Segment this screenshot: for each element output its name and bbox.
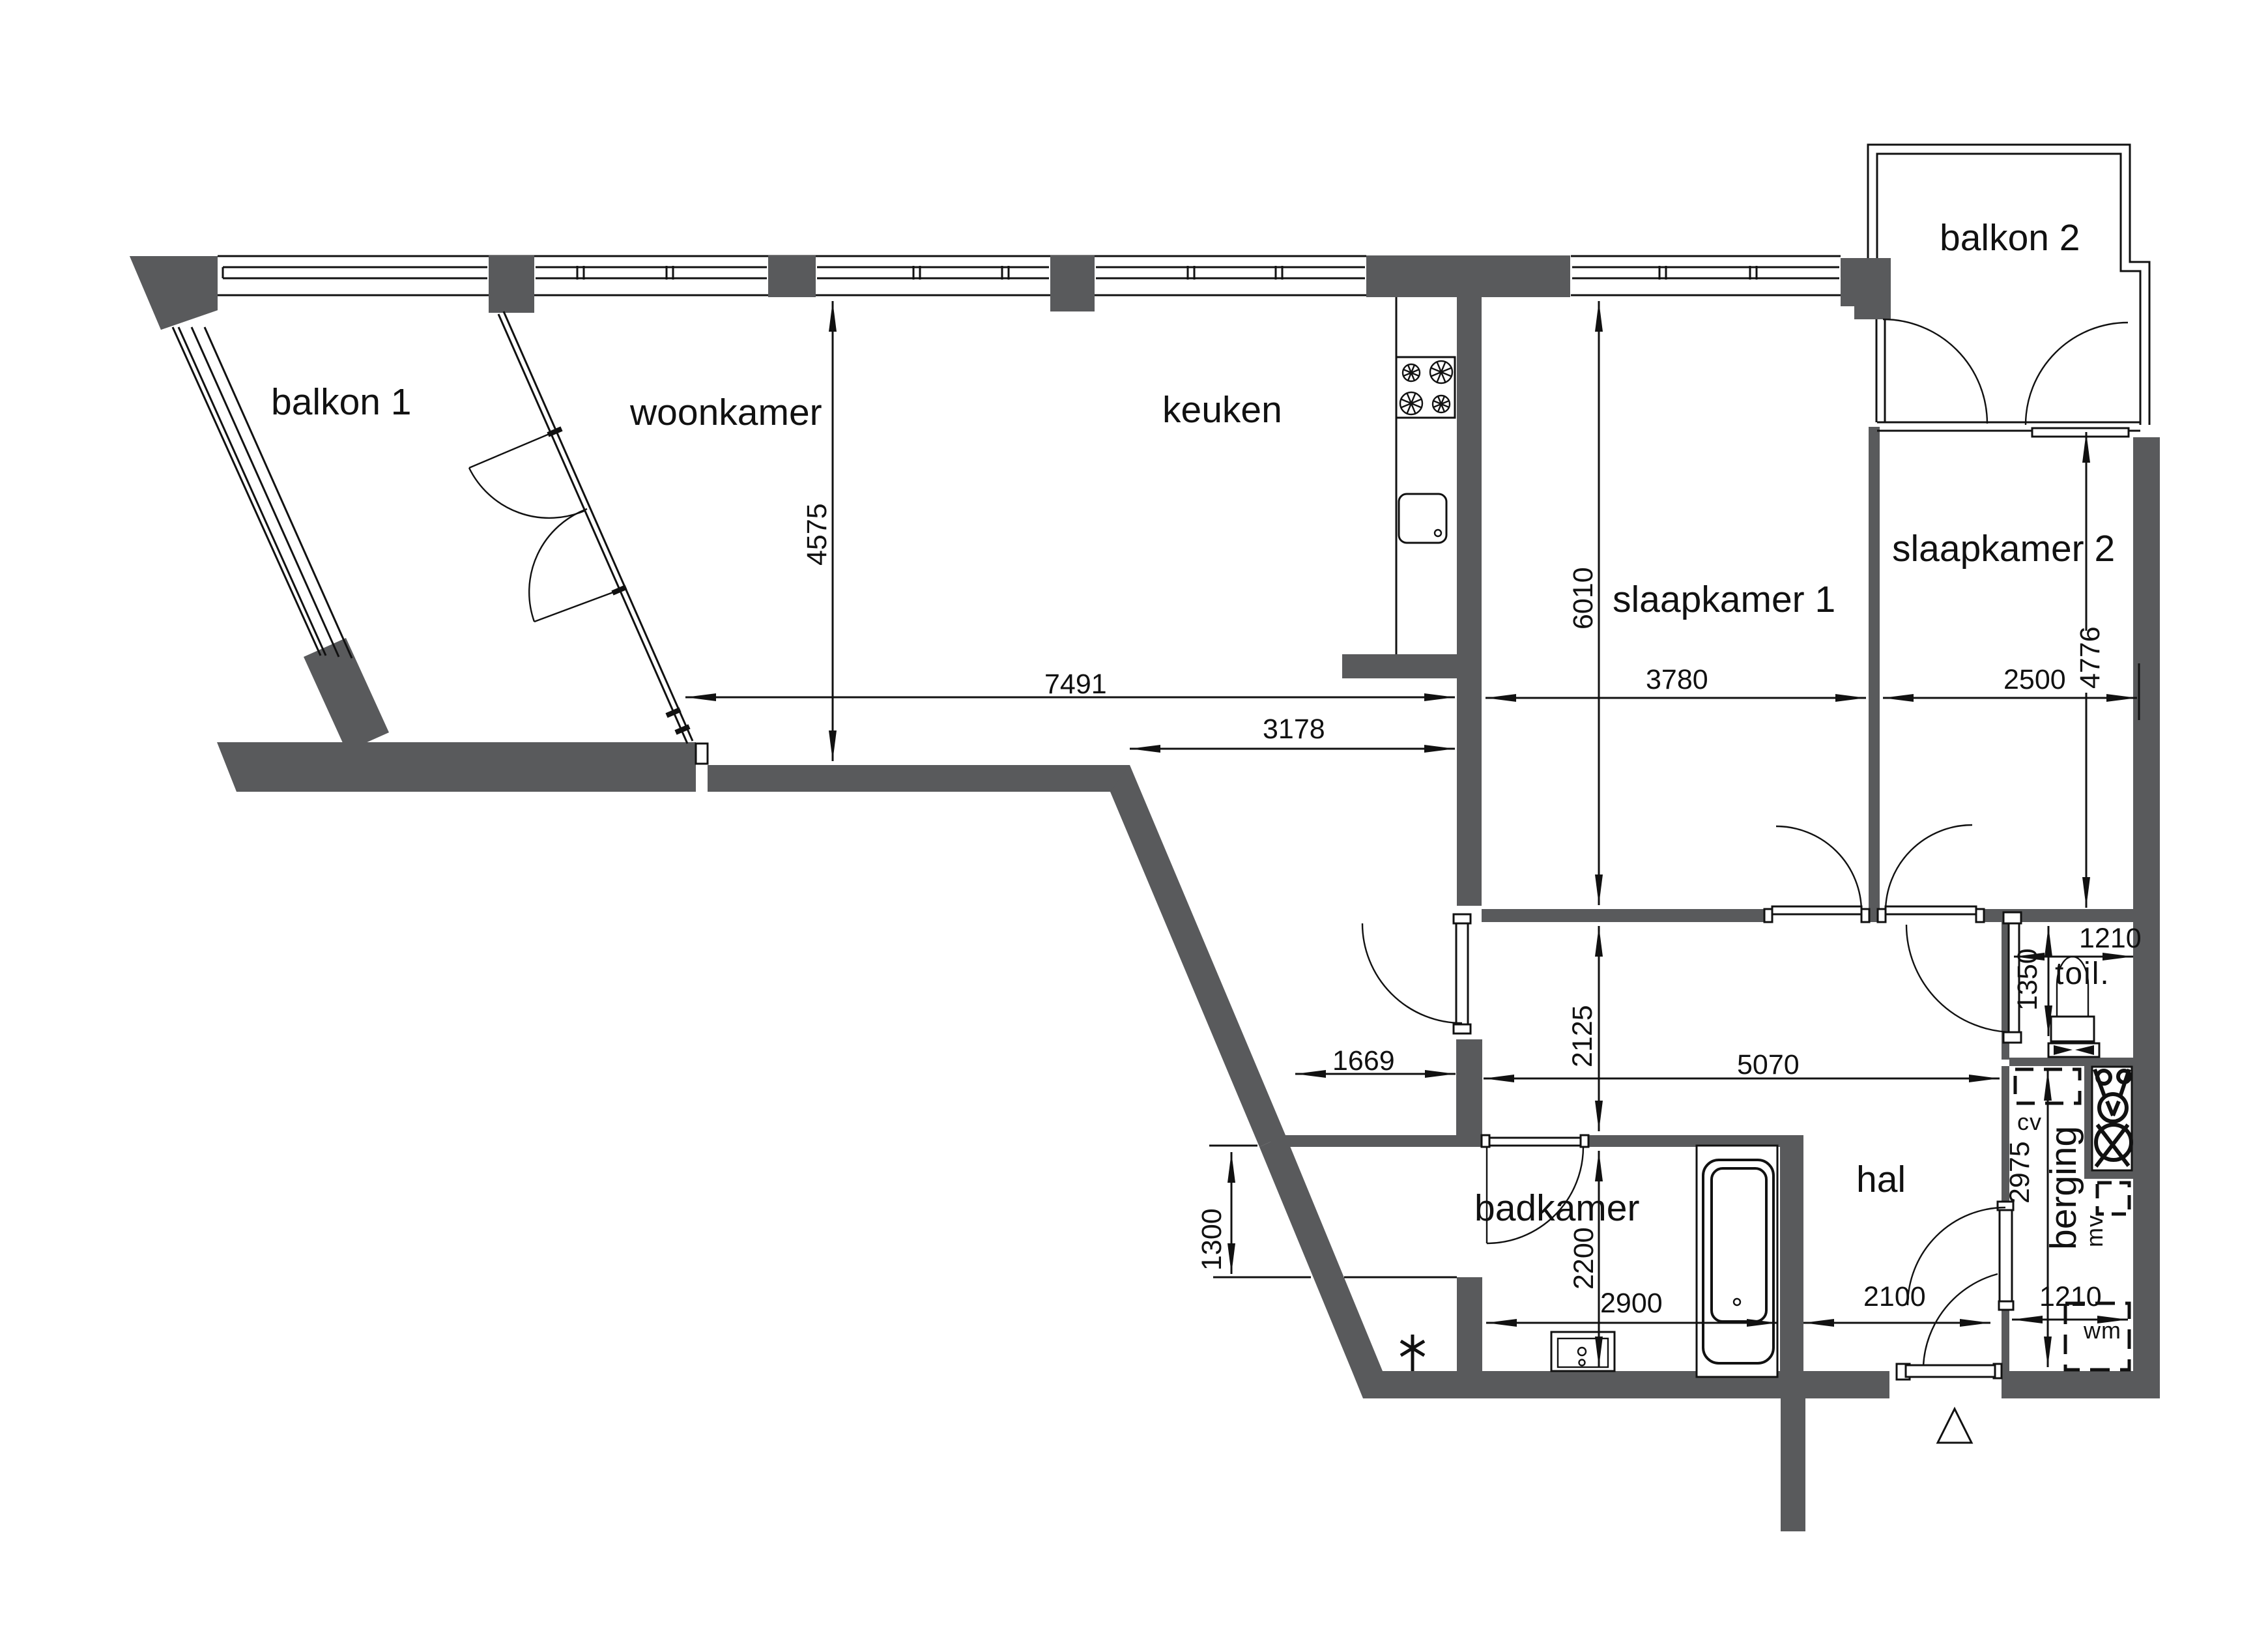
svg-text:wm: wm: [2083, 1317, 2121, 1344]
svg-text:7491: 7491: [1044, 669, 1107, 700]
svg-text:keuken: keuken: [1162, 389, 1282, 431]
svg-text:1669: 1669: [1332, 1045, 1395, 1077]
svg-text:woonkamer: woonkamer: [629, 392, 822, 433]
svg-text:2100: 2100: [1863, 1281, 1926, 1312]
svg-text:balkon 1: balkon 1: [271, 381, 412, 423]
svg-text:1300: 1300: [1196, 1208, 1227, 1271]
svg-text:2900: 2900: [1600, 1288, 1663, 1319]
svg-text:5070: 5070: [1737, 1049, 1800, 1080]
svg-text:2200: 2200: [1568, 1227, 1600, 1290]
svg-text:2125: 2125: [1567, 1005, 1598, 1067]
svg-text:1210: 1210: [2039, 1281, 2102, 1312]
svg-text:toil.: toil.: [2055, 957, 2110, 991]
svg-text:berging: berging: [2043, 1126, 2084, 1250]
svg-text:slaapkamer 1: slaapkamer 1: [1613, 579, 1835, 620]
svg-text:4575: 4575: [801, 503, 833, 566]
svg-text:6010: 6010: [1568, 567, 1599, 629]
svg-text:slaapkamer 2: slaapkamer 2: [1892, 528, 2115, 570]
svg-text:2975: 2975: [2004, 1141, 2035, 1204]
svg-text:3178: 3178: [1263, 714, 1325, 745]
svg-text:1210: 1210: [2079, 923, 2142, 954]
svg-text:3780: 3780: [1646, 664, 1708, 695]
svg-text:balkon 2: balkon 2: [1940, 217, 2080, 259]
svg-text:hal: hal: [1856, 1159, 1906, 1200]
svg-text:4776: 4776: [2074, 626, 2106, 689]
svg-text:1350: 1350: [2012, 948, 2043, 1011]
svg-text:mv: mv: [2081, 1215, 2108, 1247]
svg-text:cv: cv: [2017, 1108, 2042, 1135]
svg-text:2500: 2500: [2003, 664, 2066, 695]
svg-text:badkamer: badkamer: [1474, 1187, 1639, 1229]
